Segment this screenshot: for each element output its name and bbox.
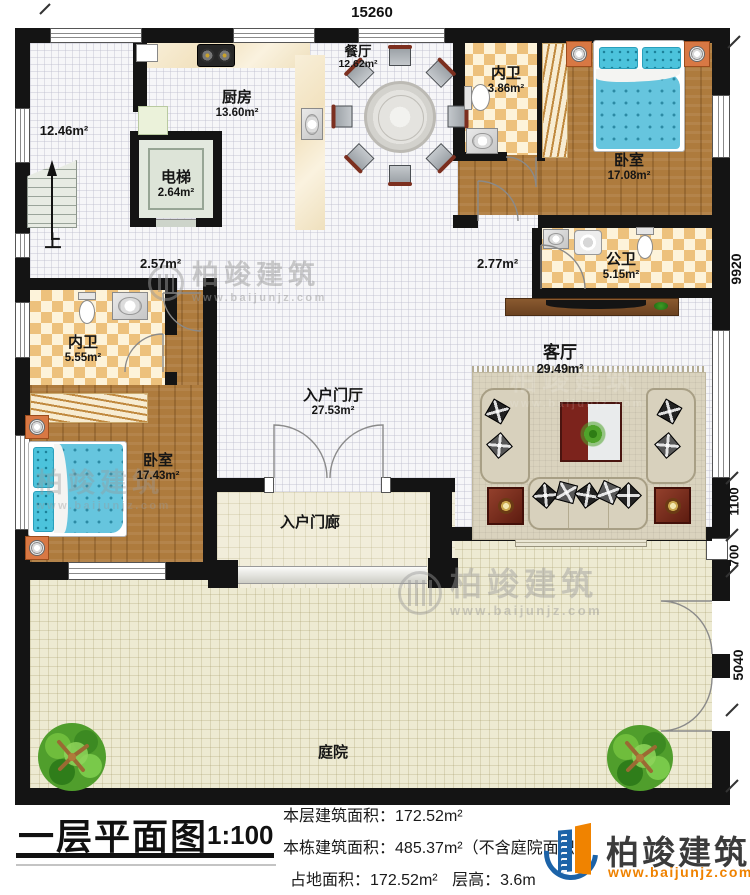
watermark-logo-icon xyxy=(398,571,442,615)
watermark-url: www.baijunjz.com xyxy=(450,603,602,618)
area-label-hall-b: 2.77m² xyxy=(477,256,518,271)
room-label-dining: 餐厅 12.62m² xyxy=(316,44,400,71)
nightstand xyxy=(684,41,710,67)
stair-up-label: 上 xyxy=(38,232,68,251)
stat-value: 3.6m xyxy=(500,872,536,889)
window xyxy=(233,28,315,43)
stove xyxy=(197,44,235,67)
room-label-porch: 入户门廊 xyxy=(255,515,365,532)
dining-table-ring xyxy=(378,95,424,141)
dim-right-5040: 5040 xyxy=(730,640,746,690)
watermark-text: 柏竣建筑 xyxy=(450,568,602,600)
wall-tv xyxy=(532,288,712,298)
tv-cabinet xyxy=(505,298,679,316)
side-table xyxy=(487,487,524,525)
stat-label: 本层建筑面积： xyxy=(283,808,395,825)
wall-right xyxy=(712,731,730,791)
window xyxy=(358,28,445,43)
stat-floor-area: 本层建筑面积：172.52m² xyxy=(283,802,463,826)
room-label-bedroom-right: 卧室17.08m² xyxy=(586,153,672,183)
tv xyxy=(546,300,646,309)
brand-url: www.baijunjz.com xyxy=(608,864,750,880)
coffee-table xyxy=(560,402,622,462)
porch-pillar xyxy=(208,560,238,588)
nightstand xyxy=(25,536,49,560)
pillow xyxy=(642,47,681,69)
bath-sink xyxy=(112,292,148,320)
room-label-bath-left: 内卫5.55m² xyxy=(43,335,123,365)
blanket xyxy=(596,73,680,149)
brand-logo-icon xyxy=(544,818,600,888)
watermark-url: www.baijunjz.com xyxy=(36,500,171,512)
dim-right-9920: 9920 xyxy=(728,244,744,294)
stat-value: 172.52m² xyxy=(370,872,438,889)
kitchen-sink xyxy=(301,108,323,140)
elevator-wall xyxy=(196,218,222,227)
wall-right-pillar xyxy=(712,654,730,678)
dining-chair xyxy=(389,165,411,184)
logo-building-orange xyxy=(575,821,591,875)
dim-right-700: 700 xyxy=(727,539,742,573)
pillow xyxy=(599,47,638,69)
stat-value: 172.52m² xyxy=(395,808,463,825)
room-label-kitchen: 厨房13.60m² xyxy=(192,90,282,120)
watermark-text: 柏竣建筑 xyxy=(192,262,327,289)
wall-entrance xyxy=(203,478,272,492)
dim-right-1100: 1100 xyxy=(727,482,742,522)
plant-decor xyxy=(654,302,668,310)
area-label-hall-a: 2.57m² xyxy=(140,256,181,271)
wall-bedroomR-bottom xyxy=(538,215,712,228)
plant xyxy=(580,421,606,447)
room-label-bath-top: 内卫3.86m² xyxy=(466,66,546,96)
room-label-stair-area: 12.46m² xyxy=(24,124,104,139)
window xyxy=(706,538,728,560)
nightstand xyxy=(25,415,49,439)
room-label-elevator: 电梯2.64m² xyxy=(136,170,216,200)
wall-publicbath-left xyxy=(532,228,542,290)
watermark-url: www.baijunjz.com xyxy=(510,398,645,410)
wardrobe xyxy=(542,43,568,158)
toilet xyxy=(79,300,95,324)
elevator-door xyxy=(156,219,196,227)
bed xyxy=(593,40,685,152)
watermark-url: www.baijunjz.com xyxy=(192,292,327,304)
door-jamb xyxy=(381,477,391,493)
title-rule-thin xyxy=(16,864,276,866)
side-table xyxy=(654,487,691,524)
elevator-wall xyxy=(130,218,156,227)
bath-sink xyxy=(543,229,569,249)
window xyxy=(68,562,166,580)
wall-suiteL-right xyxy=(203,278,217,562)
bath-sink xyxy=(466,128,498,154)
toilet xyxy=(78,292,96,300)
fridge xyxy=(136,44,158,62)
window xyxy=(50,28,142,43)
logo-building-blue xyxy=(558,829,572,872)
dishwasher xyxy=(138,106,168,135)
wall-entrance xyxy=(383,478,455,492)
window xyxy=(712,95,730,158)
wall-bathL-right xyxy=(165,372,177,385)
title-rule xyxy=(16,853,274,858)
stat-footprint: 占地面积：172.52m² 层高：3.6m xyxy=(290,866,536,890)
bedroom-right-vestibule xyxy=(458,155,540,215)
window xyxy=(15,233,30,258)
room-label-courtyard: 庭院 xyxy=(300,745,366,762)
window xyxy=(15,302,30,358)
floor-plan: 柏竣建筑 www.baijunjz.com 柏竣建筑 www.baijunjz.… xyxy=(0,0,750,895)
room-label-living: 客厅 29.49m² xyxy=(515,343,605,376)
wall-right xyxy=(712,28,730,95)
dining-chair xyxy=(334,106,353,128)
nightstand xyxy=(566,41,592,67)
scale-label: 1:100 xyxy=(207,820,274,851)
stat-label: 本栋建筑面积： xyxy=(283,840,395,857)
toilet xyxy=(636,227,654,235)
watermark: 柏竣建筑 www.baijunjz.com xyxy=(398,568,602,618)
room-label-bedroom-left: 卧室17.43m² xyxy=(115,453,201,483)
stat-label: 占地面积： xyxy=(290,872,370,889)
stat-label: 层高： xyxy=(452,872,500,889)
dim-top: 15260 xyxy=(332,4,412,21)
kitchen-counter-side xyxy=(295,55,325,230)
door-jamb xyxy=(264,477,274,493)
room-label-foyer: 入户门厅27.53m² xyxy=(283,388,383,418)
window xyxy=(712,330,730,478)
room-label-public-bath: 公卫5.15m² xyxy=(578,252,664,282)
wall-bedroomR-bottom xyxy=(453,215,478,228)
